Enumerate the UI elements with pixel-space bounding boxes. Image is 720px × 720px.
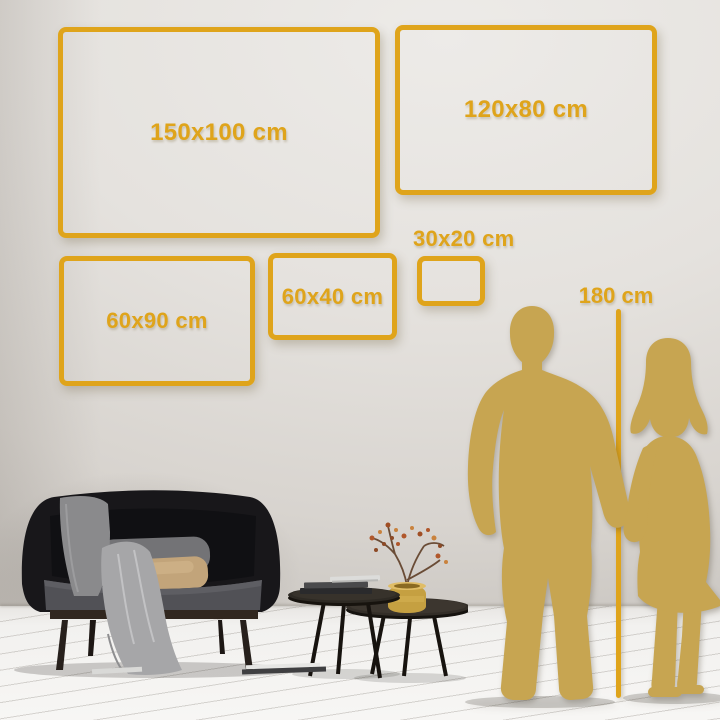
woman-leg-left bbox=[651, 598, 678, 694]
stacked-books bbox=[300, 575, 380, 594]
frame-60x90: 60x90 cm bbox=[59, 256, 255, 386]
frame-size-label: 30x20 cm bbox=[413, 226, 515, 252]
frame-120x80: 120x80 cm bbox=[395, 25, 657, 195]
man-silhouette bbox=[468, 306, 629, 700]
couple-silhouette bbox=[440, 298, 720, 710]
frame-60x40: 60x40 cm bbox=[268, 253, 397, 340]
dried-branch bbox=[370, 523, 449, 587]
sofa bbox=[6, 484, 298, 684]
frame-size-label: 60x40 cm bbox=[282, 284, 384, 310]
frame-size-label: 120x80 cm bbox=[464, 96, 588, 124]
frame-size-label: 150x100 cm bbox=[150, 119, 288, 147]
frame-size-label: 60x90 cm bbox=[106, 308, 208, 334]
floor-books bbox=[240, 658, 340, 678]
woman-hair bbox=[630, 338, 707, 437]
size-guide-scene: 150x100 cm 120x80 cm 60x90 cm 60x40 cm 3… bbox=[0, 0, 720, 720]
frame-150x100: 150x100 cm bbox=[58, 27, 380, 238]
